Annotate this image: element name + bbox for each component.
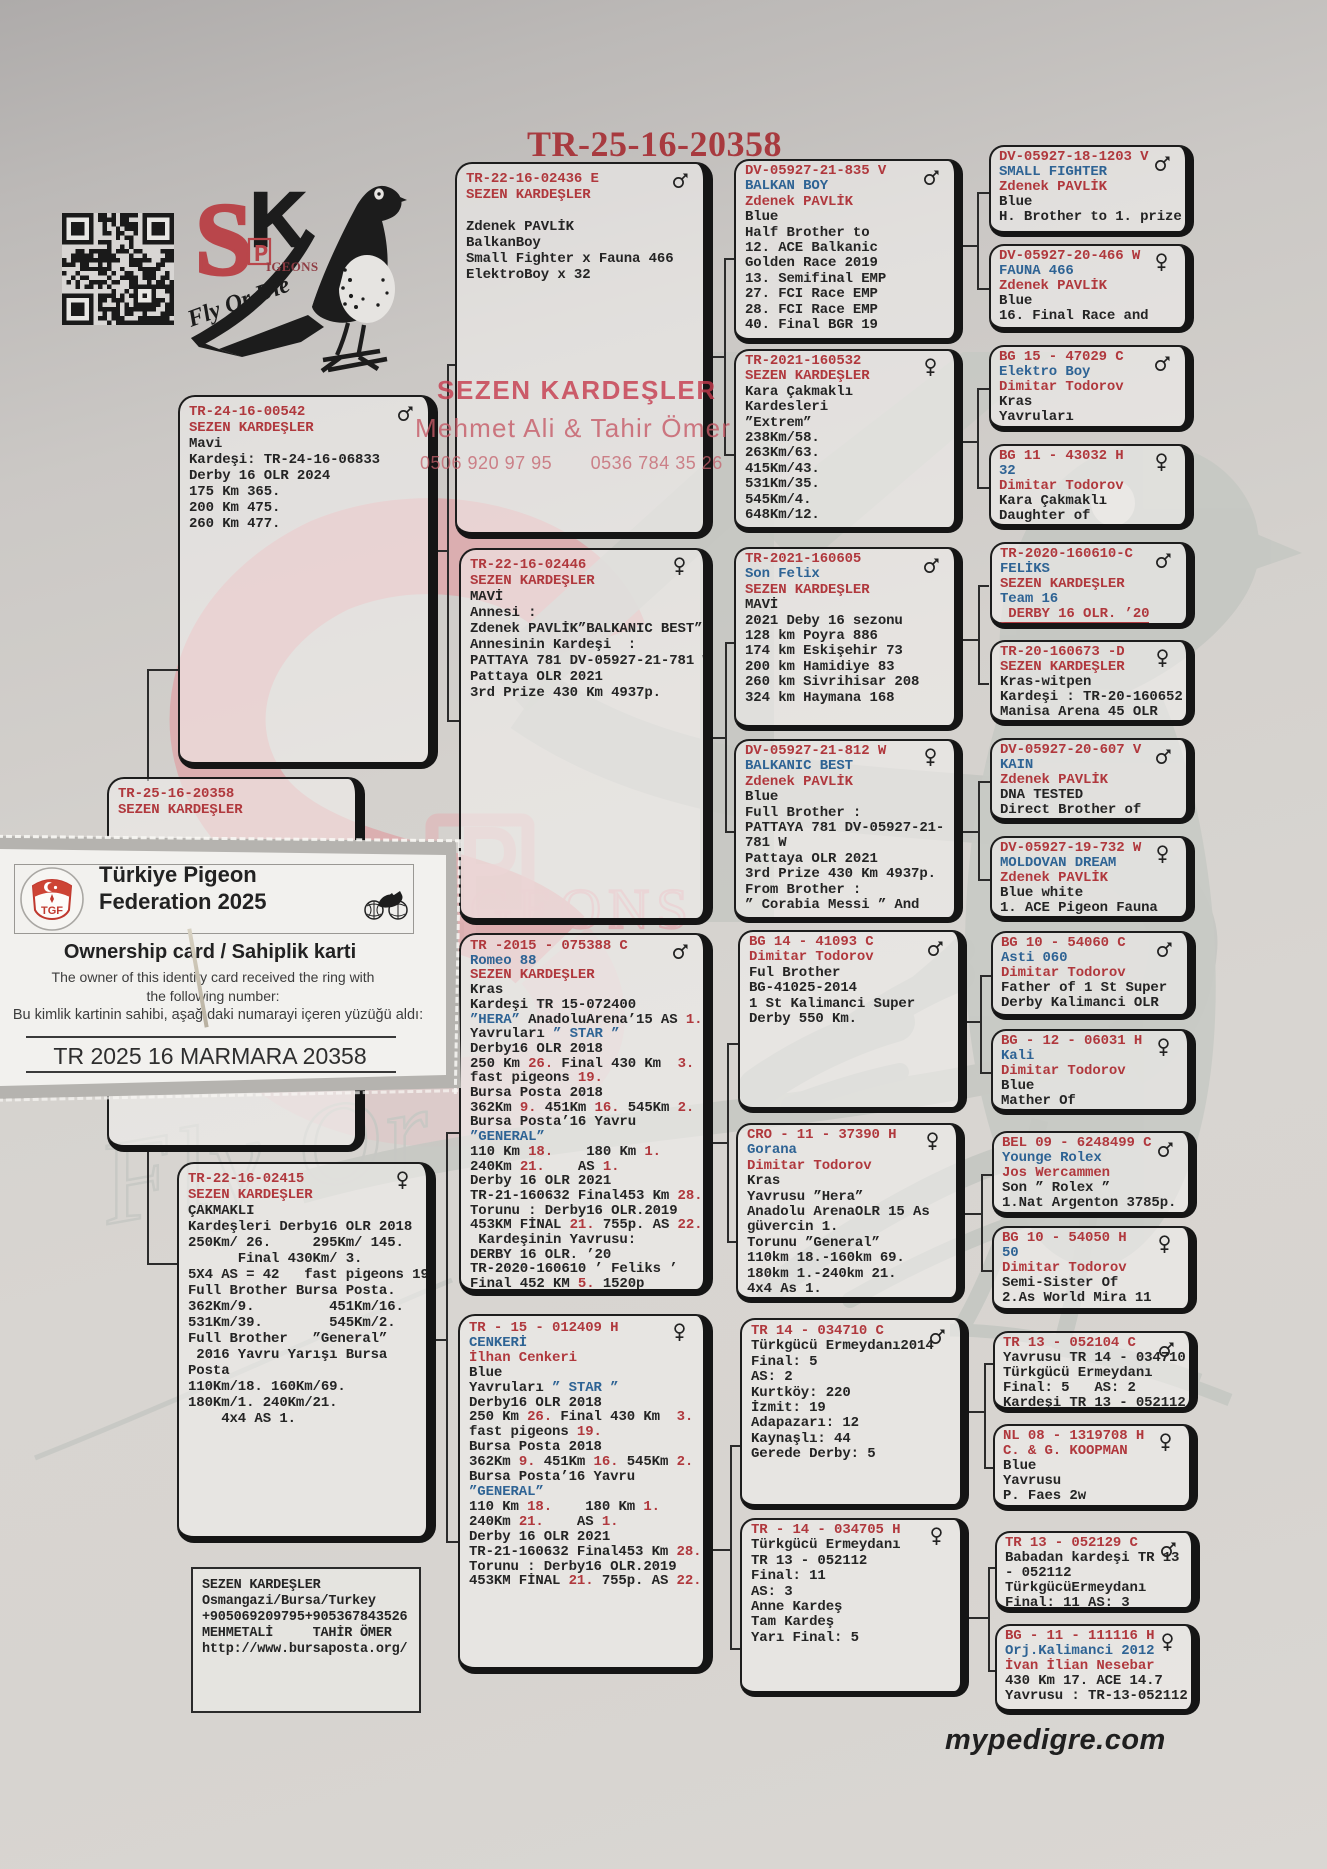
- svg-text:IGEONS: IGEONS: [266, 259, 318, 274]
- svg-text:TGF: TGF: [41, 905, 63, 917]
- svg-text:S: S: [195, 182, 253, 297]
